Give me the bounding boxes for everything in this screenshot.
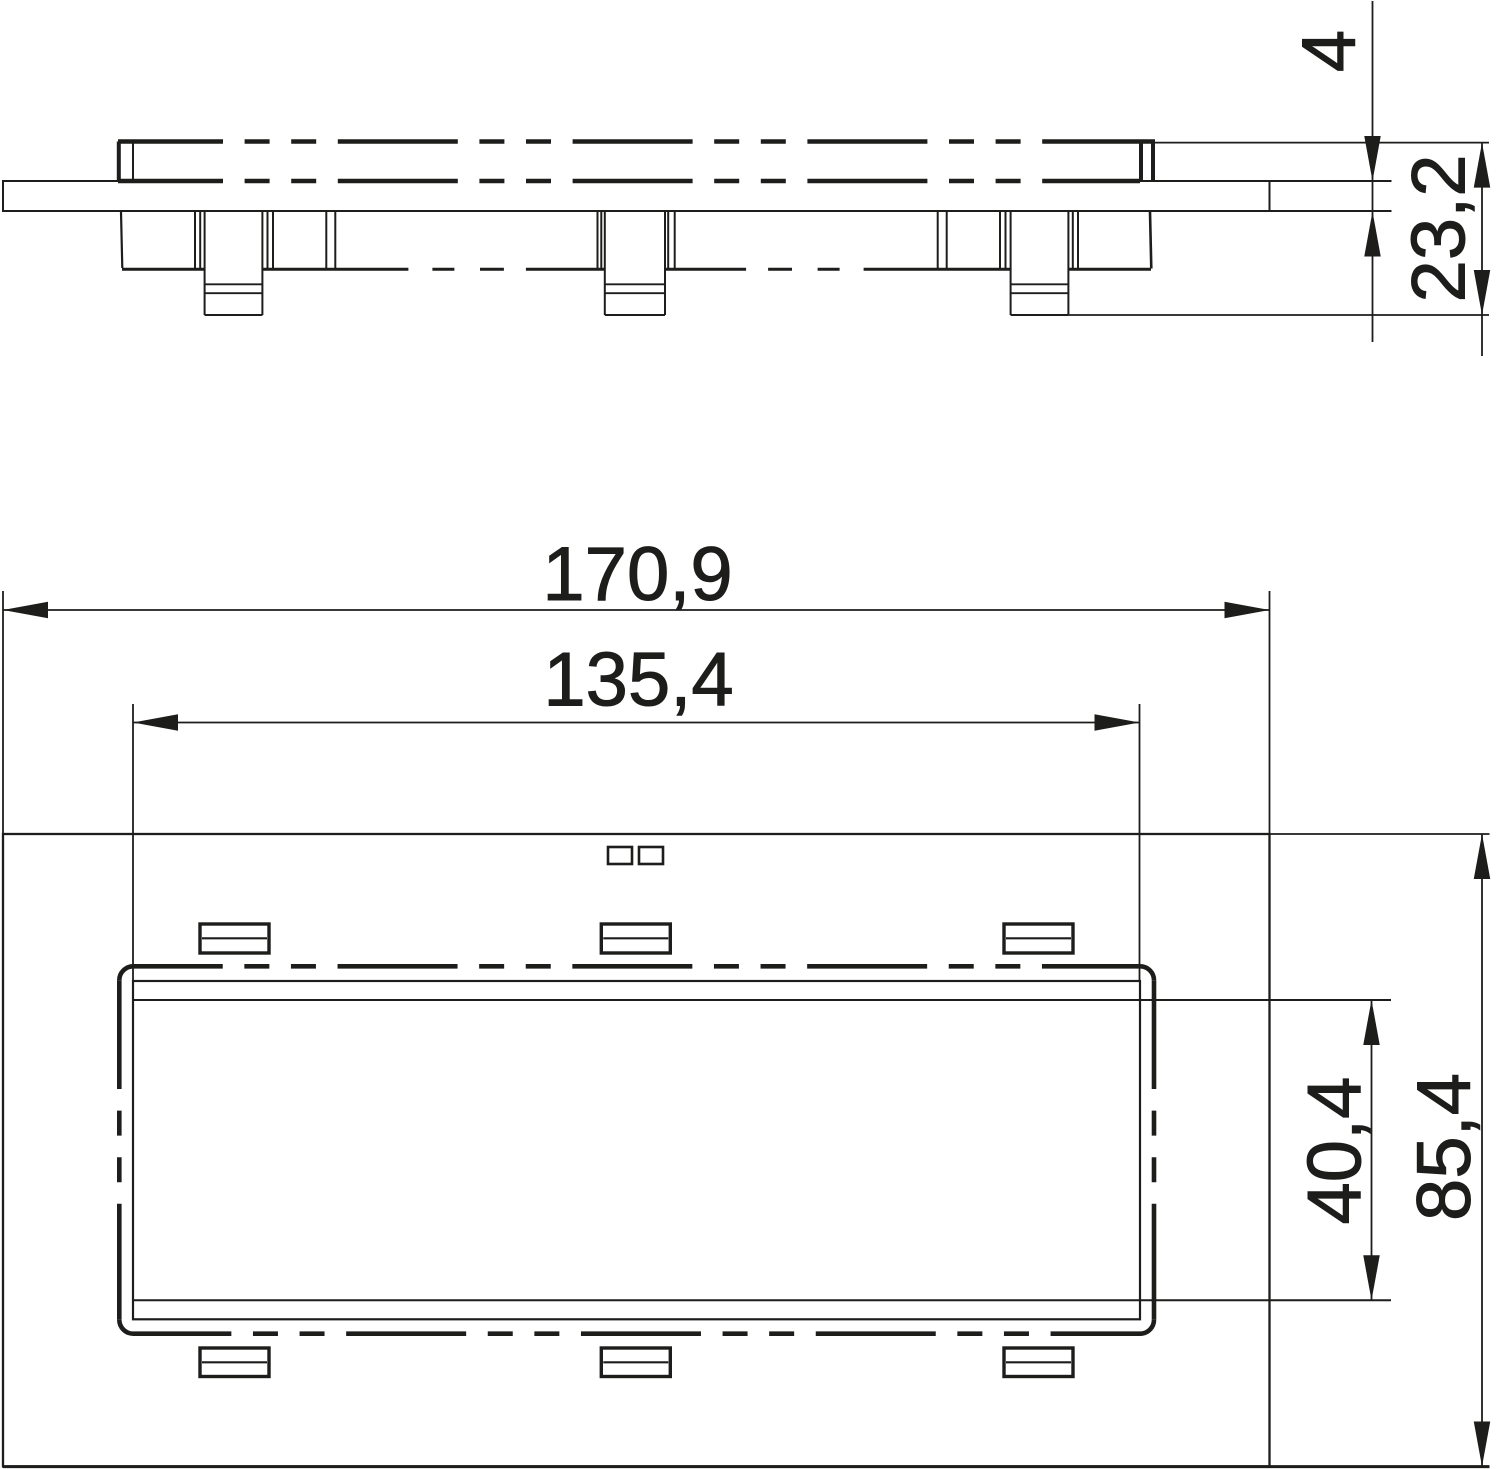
svg-text:85,4: 85,4	[1402, 1073, 1487, 1221]
svg-text:40,4: 40,4	[1293, 1077, 1378, 1225]
svg-text:135,4: 135,4	[543, 638, 733, 723]
svg-text:4: 4	[1287, 30, 1372, 72]
svg-text:170,9: 170,9	[542, 532, 732, 617]
svg-text:23,2: 23,2	[1397, 155, 1482, 303]
